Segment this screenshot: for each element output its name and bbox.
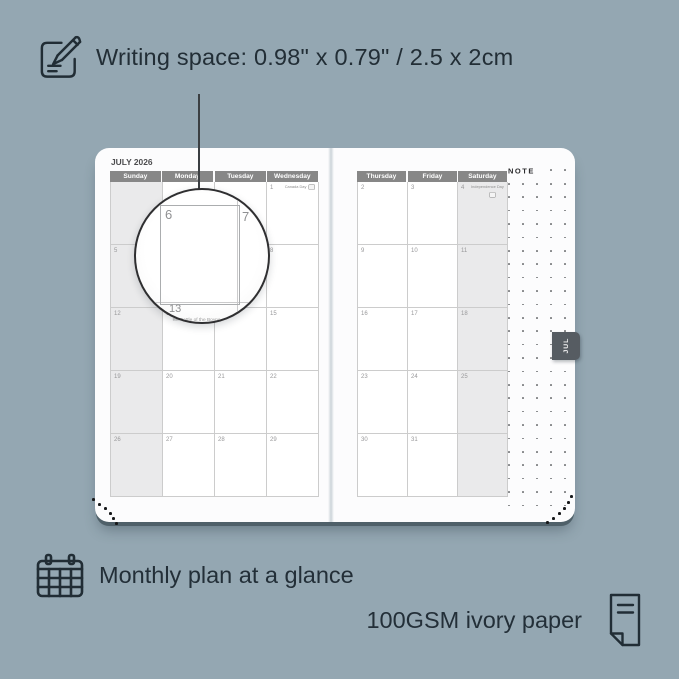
holiday-flag-icon [489, 192, 496, 197]
lens-day-number: 6 [165, 207, 172, 222]
writing-space-caption: Writing space: 0.98" x 0.79" / 2.5 x 2cm [36, 34, 513, 81]
date-cell-26: 26 [111, 434, 163, 497]
date-cell-29: 29 [267, 434, 319, 497]
holiday-flag-icon [308, 184, 315, 189]
writing-space-text: Writing space: 0.98" x 0.79" / 2.5 x 2cm [96, 44, 513, 71]
date-cell-10: 10 [408, 245, 458, 308]
date-cell-31: 31 [408, 434, 458, 497]
date-cell-15: 15 [267, 308, 319, 371]
day-header-cell: Thursday [357, 171, 406, 182]
holiday-label: Canada Day [285, 184, 307, 189]
lens-holiday-label: Battle of the Boyne [180, 317, 221, 322]
lens-day-number: 13 [169, 303, 181, 315]
date-cell-16: 16 [358, 308, 408, 371]
date-cell-11: 11 [458, 245, 508, 308]
note-pencil-icon [36, 34, 83, 81]
holiday-label: Independence Day [471, 184, 504, 189]
date-cell-9: 9 [358, 245, 408, 308]
date-cell-23: 23 [358, 371, 408, 434]
page-spine [328, 148, 334, 522]
date-cell-8: 8 [267, 245, 319, 308]
date-cell-25: 25 [458, 371, 508, 434]
day-header-cell: Wednesday [267, 171, 318, 182]
day-header-label: Thursday [357, 171, 406, 182]
date-cell-30: 30 [358, 434, 408, 497]
right-page-day-headers: ThursdayFridaySaturday [357, 171, 507, 182]
day-header-label: Monday [162, 171, 213, 182]
date-cell-22: 22 [267, 371, 319, 434]
day-header-label: Sunday [110, 171, 161, 182]
date-cell-3: 3 [408, 182, 458, 245]
right-page-calendar-grid: 234Independence Day910111617182324253031 [357, 182, 508, 497]
date-cell-2: 2 [358, 182, 408, 245]
date-cell-18: 18 [458, 308, 508, 371]
jul-month-tab-label: JUL [562, 338, 569, 354]
paper-icon [603, 592, 645, 648]
day-header-cell: Monday [162, 171, 213, 182]
left-page-day-headers: SundayMondayTuesdayWednesday [110, 171, 318, 182]
day-header-label: Tuesday [215, 171, 266, 182]
date-cell-1: 1Canada Day [267, 182, 319, 245]
day-header-label: Saturday [458, 171, 507, 182]
date-cell-24: 24 [408, 371, 458, 434]
calendar-icon [36, 553, 84, 598]
monthly-plan-text: Monthly plan at a glance [99, 562, 354, 589]
day-header-cell: Friday [408, 171, 457, 182]
paper-weight-text: 100GSM ivory paper [366, 607, 582, 634]
month-title: JULY 2026 [111, 157, 153, 167]
date-cell-12: 12 [111, 308, 163, 371]
monthly-plan-caption: Monthly plan at a glance [36, 553, 354, 598]
paper-weight-caption: 100GSM ivory paper [366, 592, 645, 648]
date-cell-27: 27 [163, 434, 215, 497]
day-header-cell: Tuesday [215, 171, 266, 182]
lens-day-number: 7 [242, 209, 249, 224]
date-cell-4: 4Independence Day [458, 182, 508, 245]
date-cell-empty [458, 434, 508, 497]
callout-pointer-line [198, 94, 200, 190]
day-header-cell: Saturday [458, 171, 507, 182]
date-cell-20: 20 [163, 371, 215, 434]
date-cell-19: 19 [111, 371, 163, 434]
note-label: NOTE [508, 167, 535, 175]
date-cell-28: 28 [215, 434, 267, 497]
day-header-cell: Sunday [110, 171, 161, 182]
date-cell-21: 21 [215, 371, 267, 434]
day-header-label: Wednesday [267, 171, 318, 182]
product-infographic: Writing space: 0.98" x 0.79" / 2.5 x 2cm… [0, 0, 679, 679]
day-header-label: Friday [408, 171, 457, 182]
jul-month-tab: JUL [552, 332, 580, 360]
magnifier-lens: 6 7 13 Battle of the Boyne [134, 188, 270, 324]
date-cell-17: 17 [408, 308, 458, 371]
planner-spread: JULY 2026 SundayMondayTuesdayWednesday 1… [95, 148, 575, 522]
